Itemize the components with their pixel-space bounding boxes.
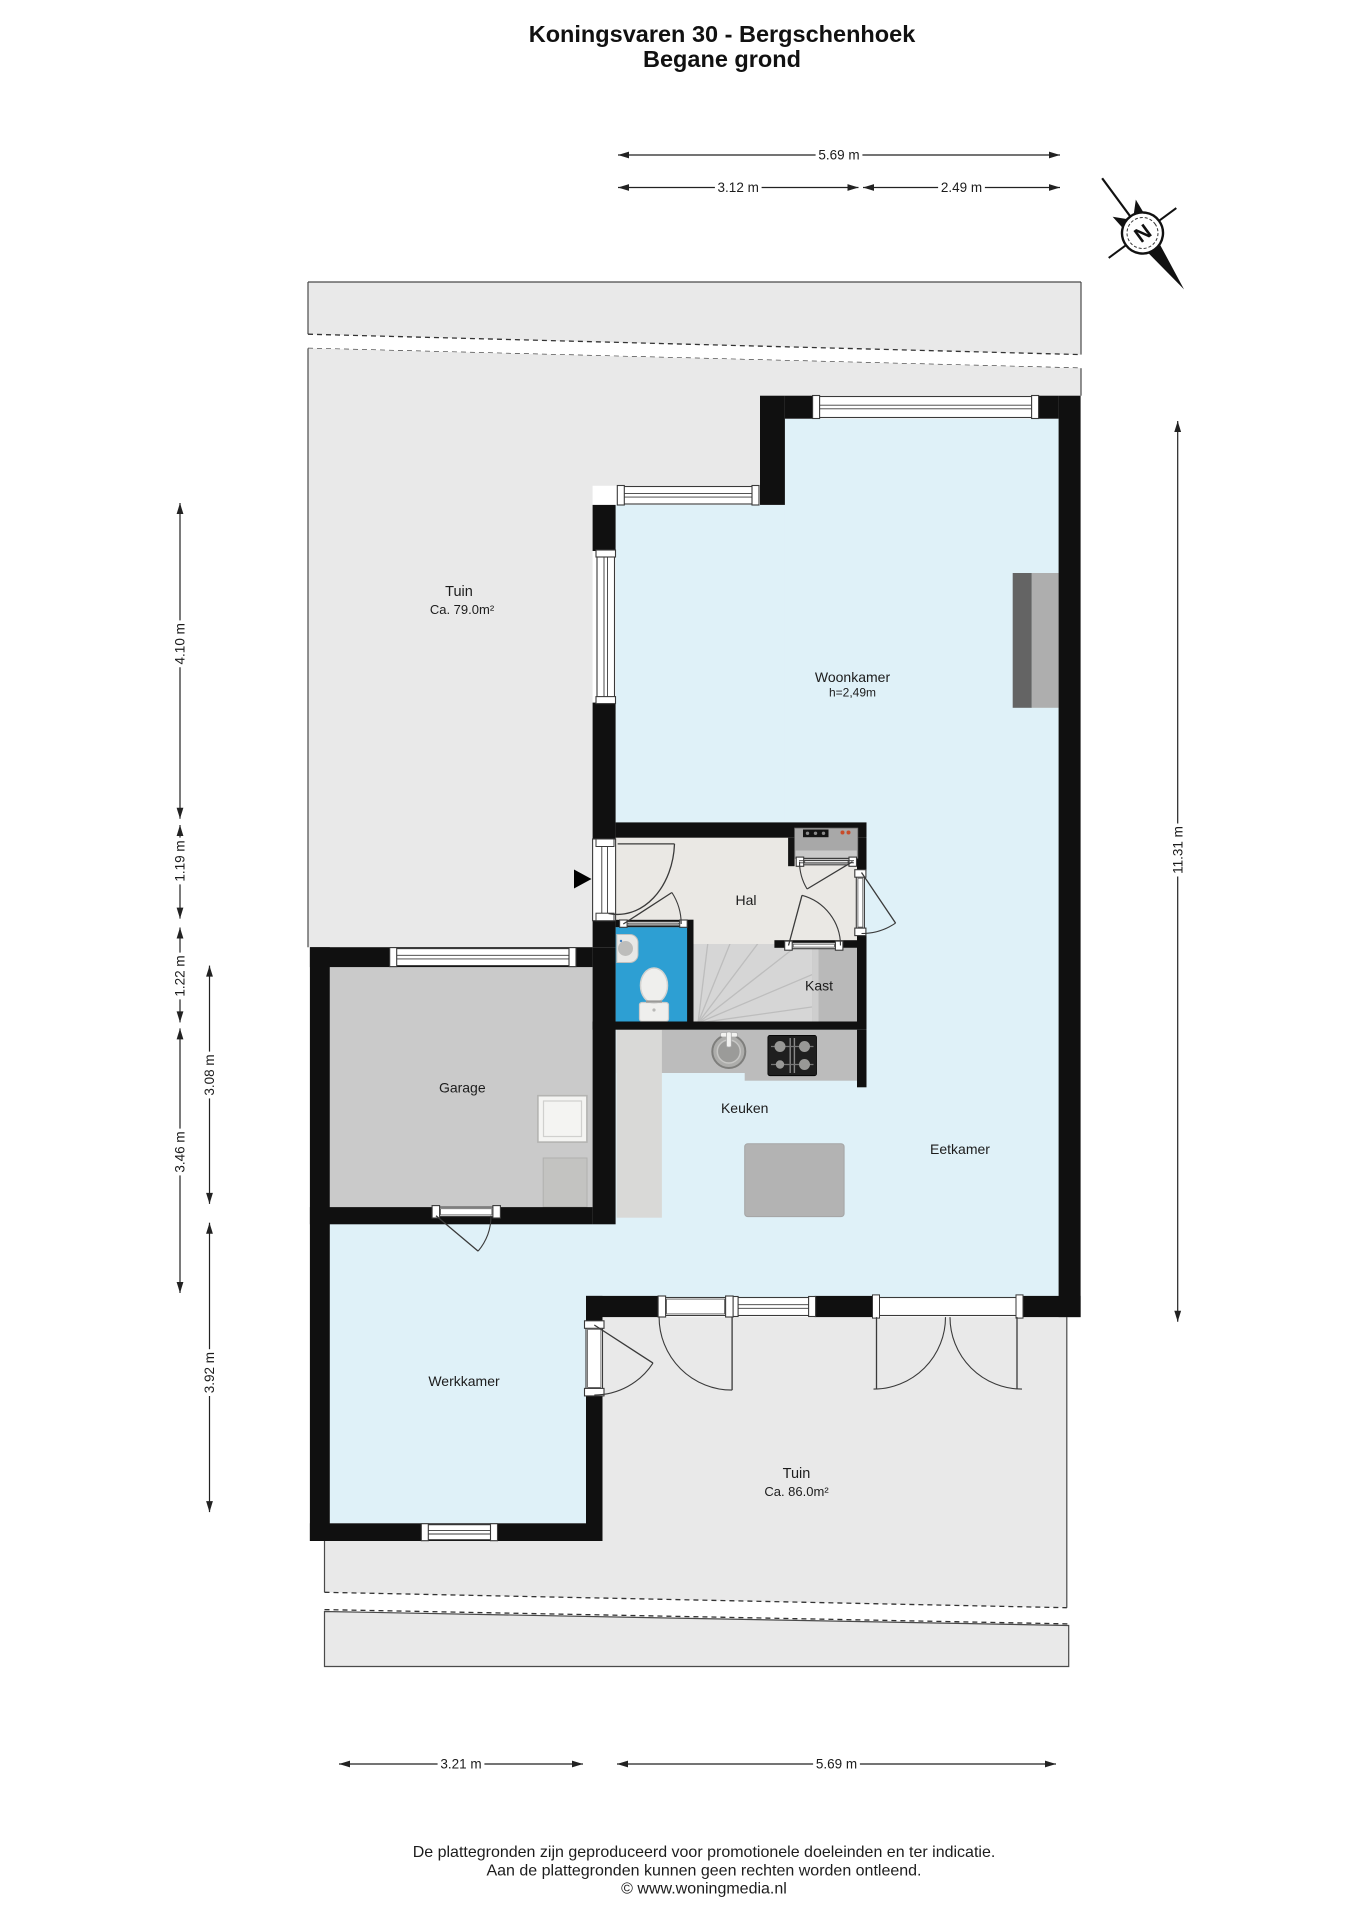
svg-text:Eetkamer: Eetkamer [930, 1141, 990, 1157]
svg-text:Tuin: Tuin [445, 584, 473, 600]
svg-text:3.08 m: 3.08 m [202, 1054, 217, 1095]
svg-text:© www.woningmedia.nl: © www.woningmedia.nl [621, 1881, 787, 1898]
svg-text:Begane grond: Begane grond [643, 46, 801, 72]
svg-text:11.31 m: 11.31 m [1170, 826, 1185, 874]
svg-text:Koningsvaren 30 - Bergschenhoe: Koningsvaren 30 - Bergschenhoek [529, 21, 916, 47]
svg-text:5.69 m: 5.69 m [818, 148, 859, 163]
svg-text:Tuin: Tuin [783, 1466, 811, 1482]
svg-text:Aan de plattegronden kunnen ge: Aan de plattegronden kunnen geen rechten… [486, 1863, 921, 1880]
svg-text:4.10 m: 4.10 m [173, 623, 188, 664]
svg-text:Hal: Hal [735, 892, 756, 908]
svg-text:Woonkamer: Woonkamer [815, 669, 891, 685]
svg-text:2.49 m: 2.49 m [941, 180, 982, 195]
svg-text:Garage: Garage [439, 1080, 486, 1096]
svg-text:De plattegronden zijn geproduc: De plattegronden zijn geproduceerd voor … [413, 1844, 996, 1861]
svg-text:3.21 m: 3.21 m [440, 1757, 481, 1772]
svg-text:3.92 m: 3.92 m [202, 1352, 217, 1393]
svg-text:h=2,49m: h=2,49m [829, 686, 876, 700]
svg-text:Ca. 86.0m²: Ca. 86.0m² [764, 1484, 829, 1499]
svg-text:3.46 m: 3.46 m [173, 1131, 188, 1172]
svg-text:5.69 m: 5.69 m [816, 1757, 857, 1772]
svg-text:Keuken: Keuken [721, 1100, 768, 1116]
svg-text:1.19 m: 1.19 m [173, 840, 188, 881]
svg-text:Kast: Kast [805, 978, 833, 994]
svg-text:Ca. 79.0m²: Ca. 79.0m² [430, 602, 495, 617]
svg-text:Werkkamer: Werkkamer [428, 1373, 500, 1389]
svg-text:1.22 m: 1.22 m [173, 955, 188, 996]
svg-text:3.12 m: 3.12 m [718, 180, 759, 195]
